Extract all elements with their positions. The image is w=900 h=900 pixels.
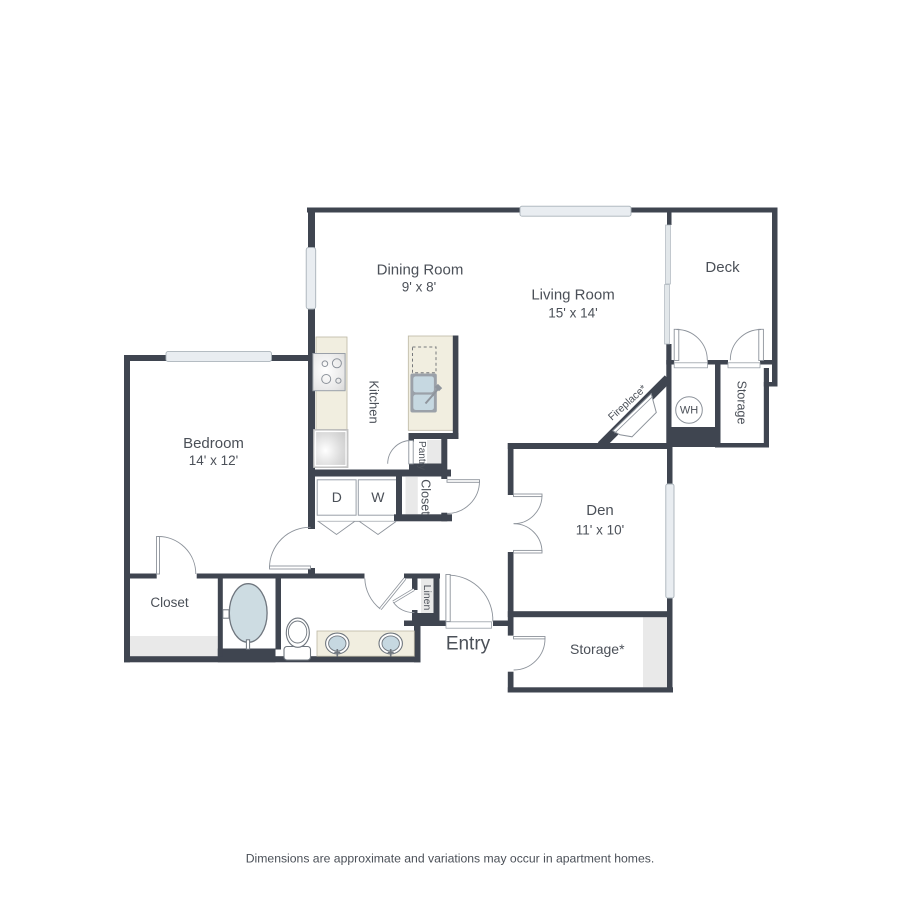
- svg-text:Closet: Closet: [419, 479, 433, 515]
- svg-text:Kitchen: Kitchen: [367, 380, 382, 423]
- svg-text:Storage*: Storage*: [570, 641, 625, 657]
- svg-text:9' x 8': 9' x 8': [402, 280, 436, 295]
- svg-text:Entry: Entry: [446, 634, 491, 655]
- svg-text:Deck: Deck: [705, 259, 740, 276]
- svg-text:14' x 12': 14' x 12': [189, 453, 238, 468]
- svg-text:Closet: Closet: [150, 595, 189, 610]
- svg-text:Bedroom: Bedroom: [183, 435, 244, 452]
- svg-text:Pantry: Pantry: [416, 441, 427, 470]
- svg-text:15' x 14': 15' x 14': [548, 306, 597, 321]
- svg-text:Den: Den: [586, 502, 614, 519]
- svg-text:Living Room: Living Room: [531, 287, 614, 304]
- svg-text:11' x 10': 11' x 10': [576, 523, 624, 538]
- svg-text:Linen: Linen: [421, 585, 433, 611]
- svg-text:Storage: Storage: [735, 381, 749, 425]
- svg-text:W: W: [371, 489, 385, 505]
- svg-text:Dimensions are approximate and: Dimensions are approximate and variation…: [246, 852, 654, 866]
- svg-text:D: D: [332, 489, 342, 505]
- svg-text:WH: WH: [680, 405, 698, 417]
- svg-text:Dining Room: Dining Room: [377, 262, 464, 279]
